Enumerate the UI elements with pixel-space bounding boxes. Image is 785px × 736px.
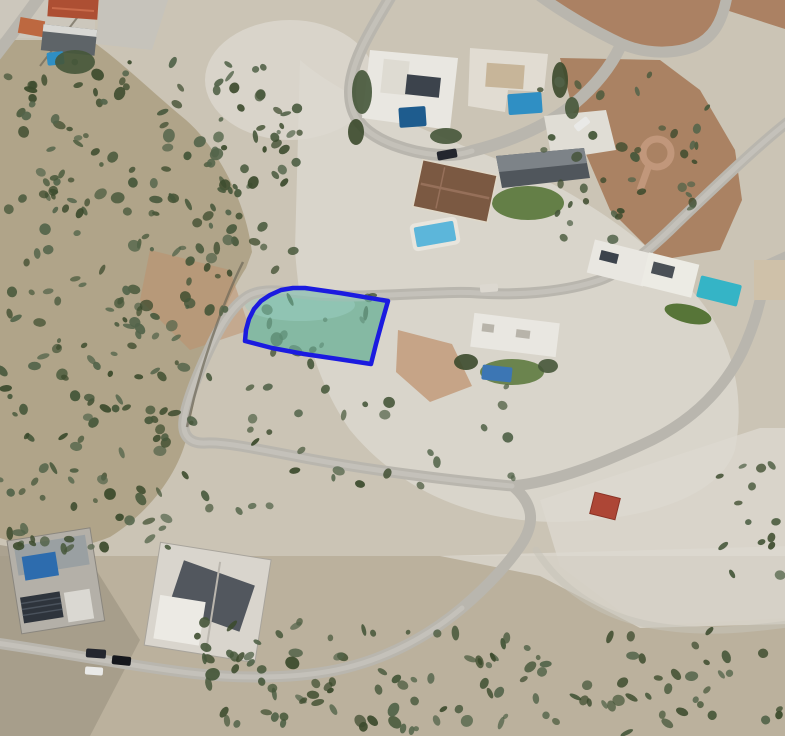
villa-roof-wing [380, 59, 409, 96]
bush [628, 177, 636, 182]
swimming-pool [507, 92, 542, 115]
bush [214, 242, 221, 255]
villa-courtyard [485, 63, 525, 90]
car [86, 648, 107, 658]
lawn [492, 186, 564, 220]
pool-tarp [481, 364, 512, 382]
bush [28, 362, 41, 370]
car [85, 666, 104, 675]
beige-building [754, 260, 785, 300]
villa-solar-roof [405, 74, 441, 97]
roof-unit [516, 329, 531, 339]
satellite-map[interactable] [0, 0, 785, 736]
roof-unit [482, 323, 495, 332]
roof-white-section [64, 589, 94, 623]
swimming-pool [398, 106, 426, 128]
satellite-map-viewport[interactable] [0, 0, 785, 736]
car [480, 283, 499, 292]
